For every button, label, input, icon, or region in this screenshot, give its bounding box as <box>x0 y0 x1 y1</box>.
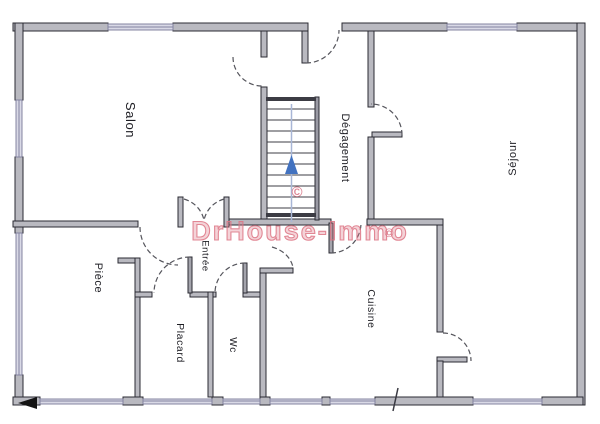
wall-segment <box>260 397 270 405</box>
wall-segment <box>368 31 374 107</box>
door-swing-arc <box>215 263 245 293</box>
window <box>40 399 123 404</box>
window <box>108 24 173 30</box>
window <box>16 100 22 157</box>
window <box>143 399 212 404</box>
door-swing-arc <box>140 227 178 265</box>
wall-segment <box>13 23 108 31</box>
watermark-text: DrHouse-Immo <box>191 216 409 246</box>
wall-segment <box>135 258 140 397</box>
window <box>16 233 22 375</box>
wall-segment <box>13 221 138 227</box>
wall-segment <box>123 397 143 405</box>
wall-segment <box>260 268 293 273</box>
wall-segment <box>212 397 223 405</box>
wall-segment <box>517 23 583 31</box>
window <box>330 399 375 404</box>
wall-segment <box>542 397 583 405</box>
wall-segment <box>372 132 402 137</box>
wall-segment <box>260 268 266 397</box>
window <box>223 399 260 404</box>
wall-segment <box>261 87 267 223</box>
wall-segment <box>173 23 308 31</box>
wall-segment <box>375 397 473 405</box>
staircase <box>266 97 319 222</box>
window <box>473 399 542 404</box>
wall-segment <box>178 197 183 227</box>
door-leaf <box>243 263 247 293</box>
room-label-sejour: Séjour <box>507 140 519 175</box>
room-label-salon: Salon <box>123 102 138 138</box>
wall-segment <box>577 23 585 405</box>
door-swing-arc <box>154 257 190 293</box>
wall-segment <box>208 292 213 397</box>
floor-plan-drawing: Salon Dégagement Séjour Pièce Entrée Pla… <box>0 0 600 424</box>
room-label-piece: Pièce <box>92 263 104 294</box>
door-swing-arc <box>233 57 262 86</box>
stair-rail <box>315 97 319 220</box>
window <box>270 399 322 404</box>
door-swing-arc <box>306 30 339 63</box>
room-label-wc: Wc <box>227 337 238 353</box>
room-label-cuisine: Cuisine <box>365 289 377 328</box>
door-swing-arc <box>272 247 293 267</box>
wall-segment <box>135 292 152 297</box>
copyright-mark: © <box>291 184 302 201</box>
wall-segment <box>342 23 447 31</box>
window <box>447 24 517 30</box>
door-arcs <box>140 30 471 361</box>
door-leaf <box>188 257 192 293</box>
stair-top-tread <box>266 97 316 101</box>
interior-walls <box>13 31 467 397</box>
wall-segment <box>15 23 23 100</box>
wall-segment <box>437 361 443 397</box>
room-label-degagement: Dégagement <box>339 114 351 183</box>
wall-segment <box>368 137 374 220</box>
door-swing-arc <box>371 104 402 135</box>
wall-segment <box>302 31 308 63</box>
wall-segment <box>261 31 267 57</box>
room-label-placard: Placard <box>174 323 186 363</box>
wall-segment <box>322 397 330 405</box>
floor-plan: Salon Dégagement Séjour Pièce Entrée Pla… <box>0 0 600 424</box>
wall-segment <box>437 225 443 332</box>
